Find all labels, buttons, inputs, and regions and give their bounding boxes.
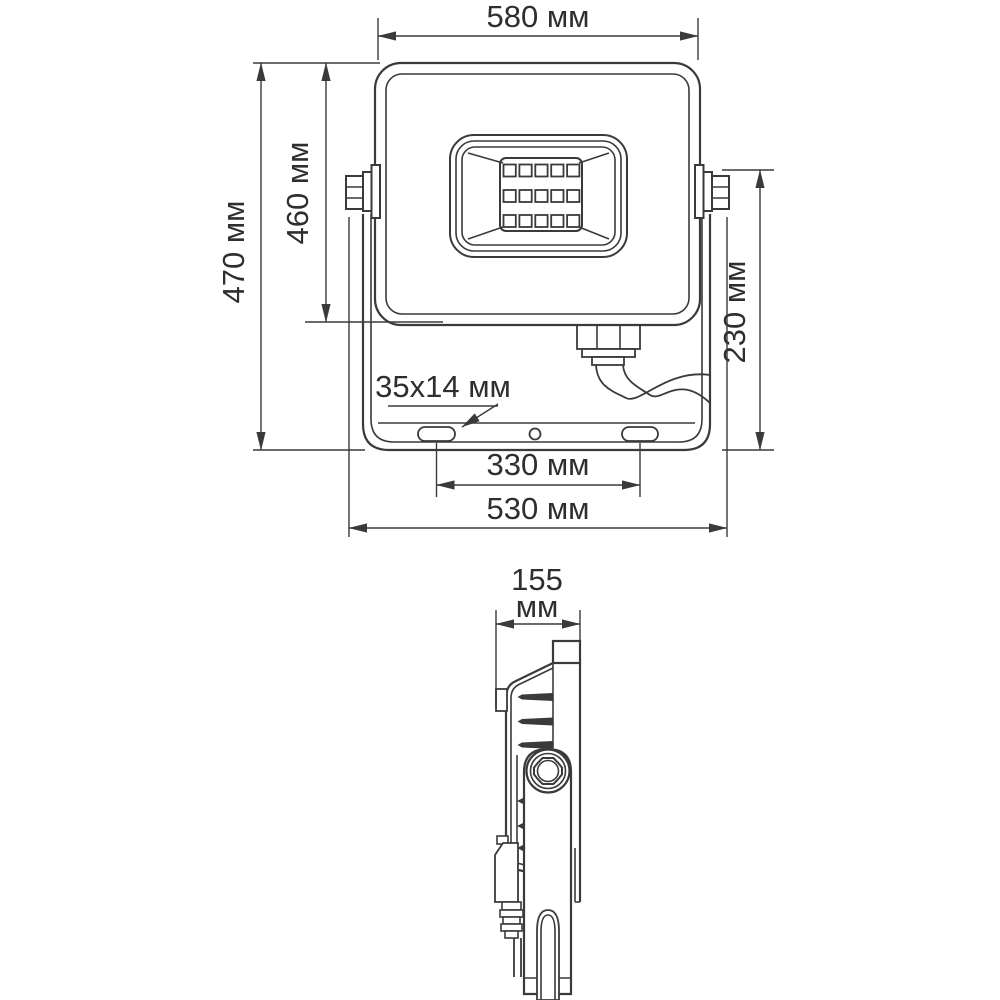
gland-hex-nut bbox=[577, 325, 640, 349]
bolt-washer bbox=[372, 165, 381, 218]
bracket-arm bbox=[517, 749, 571, 1000]
mounting-slot-left bbox=[418, 427, 455, 441]
center-hole bbox=[530, 429, 541, 440]
dim-label-depth-unit: мм bbox=[516, 589, 559, 624]
gland-collar bbox=[582, 349, 635, 357]
bolt-spacer bbox=[363, 172, 372, 211]
mounting-slot-right bbox=[622, 427, 658, 441]
bolt-hex-head bbox=[346, 176, 363, 209]
dim-label-slot-spacing: 330 мм bbox=[487, 447, 590, 482]
gland-neck bbox=[592, 357, 624, 365]
dim-label-slot-size: 35x14 мм bbox=[375, 369, 511, 404]
body-outer bbox=[375, 63, 700, 325]
dim-label-body-height: 460 мм bbox=[280, 142, 315, 245]
side-tab bbox=[496, 689, 507, 711]
bolt-hex-head bbox=[712, 176, 729, 209]
dim-label-overall-height: 470 мм bbox=[216, 201, 251, 304]
box-outline bbox=[495, 843, 518, 902]
floodlight-body bbox=[375, 63, 700, 325]
bolt-spacer bbox=[704, 172, 713, 211]
technical-drawing-page: 580 мм 470 мм 460 мм 230 мм 35x14 мм bbox=[0, 0, 1000, 1000]
dim-label-width-top: 580 мм bbox=[487, 0, 590, 34]
floodlight-dimension-drawing: 580 мм 470 мм 460 мм 230 мм 35x14 мм bbox=[0, 0, 1000, 1000]
dim-label-bracket-height: 230 мм bbox=[717, 261, 752, 364]
bolt-washer bbox=[695, 165, 704, 218]
dim-label-bracket-width: 530 мм bbox=[487, 491, 590, 526]
